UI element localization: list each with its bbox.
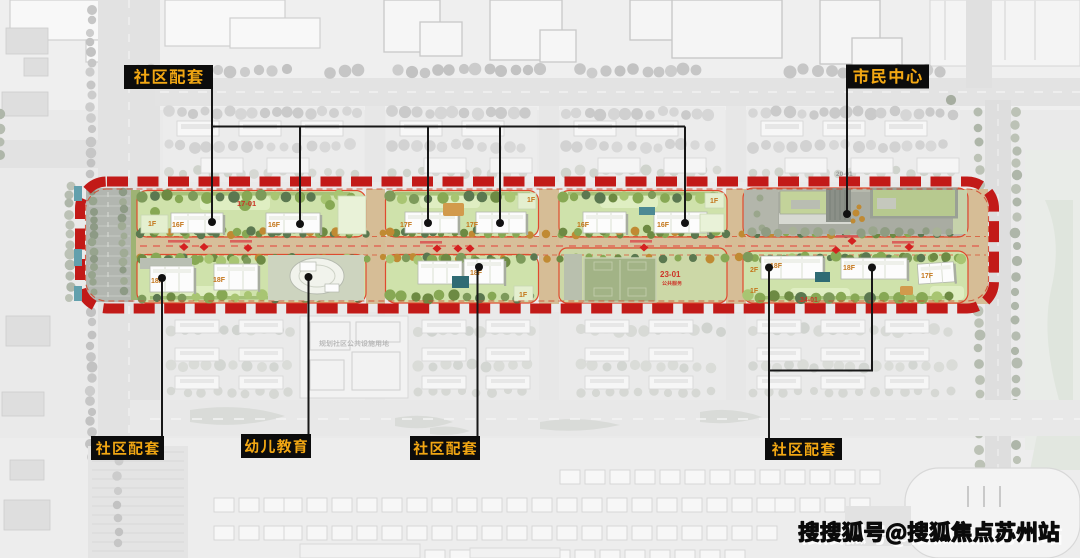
svg-text:16F: 16F xyxy=(172,222,185,229)
svg-text:18F: 18F xyxy=(213,277,226,284)
svg-text:16F: 16F xyxy=(577,222,590,229)
svg-text:2F: 2F xyxy=(750,267,759,274)
svg-text:1F: 1F xyxy=(750,288,759,295)
svg-text:17-01: 17-01 xyxy=(237,199,256,208)
svg-text:17F: 17F xyxy=(400,222,413,229)
svg-text:23-01: 23-01 xyxy=(660,270,681,279)
svg-text:1F: 1F xyxy=(519,292,528,299)
svg-text:1F: 1F xyxy=(710,198,719,205)
svg-text:1F: 1F xyxy=(527,197,536,204)
svg-text:18F: 18F xyxy=(843,265,856,272)
svg-text:1F: 1F xyxy=(148,221,157,228)
svg-text:16F: 16F xyxy=(268,222,281,229)
svg-text:17F: 17F xyxy=(466,222,479,229)
svg-text:18F: 18F xyxy=(470,270,483,277)
svg-text:16F: 16F xyxy=(657,222,670,229)
svg-text:17F: 17F xyxy=(921,273,934,280)
